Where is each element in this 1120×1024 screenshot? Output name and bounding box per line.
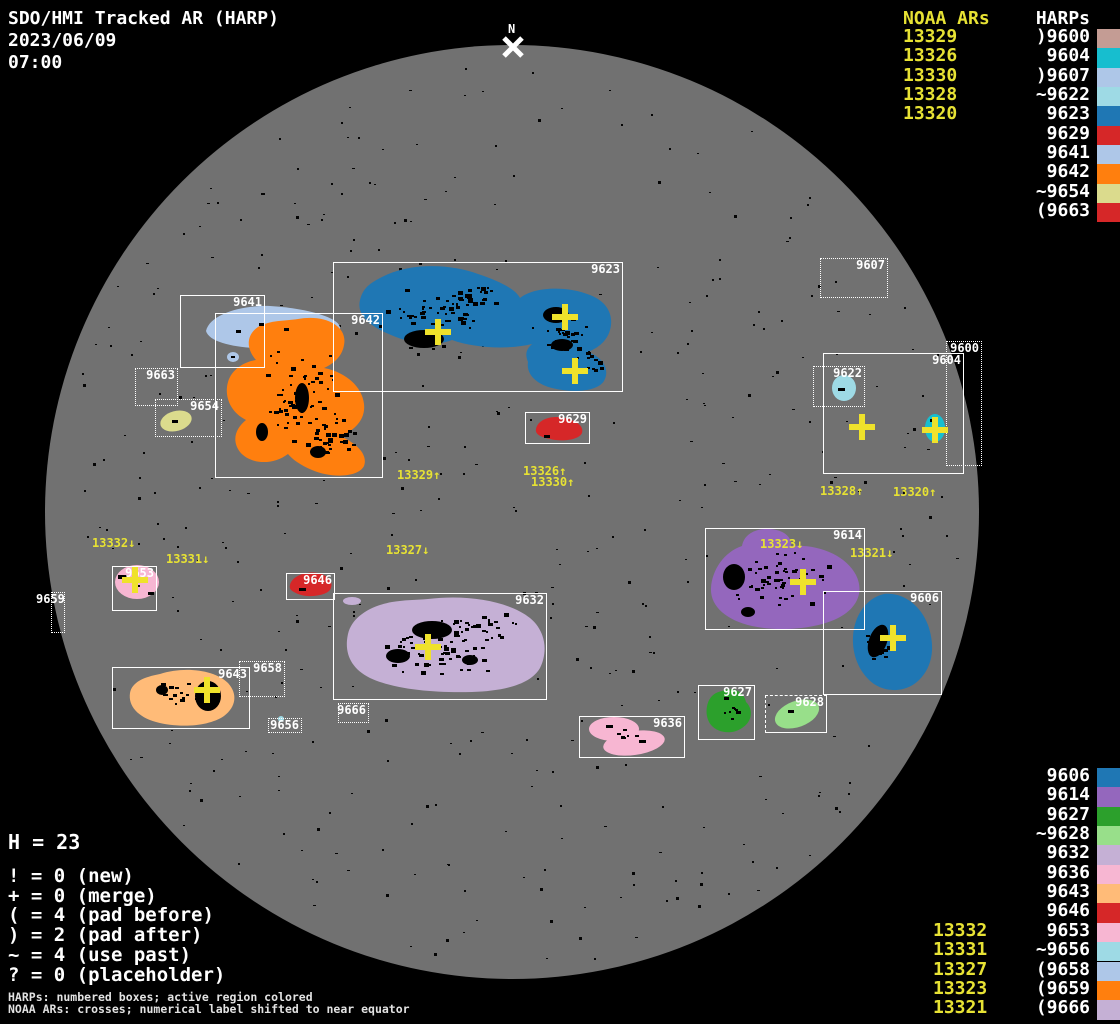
- noaa-cross-icon: [562, 358, 588, 384]
- harp-item-9623: 9623: [1047, 104, 1090, 123]
- harp-color-chip-9629: [1097, 126, 1120, 145]
- footer-line-2: NOAA ARs: crosses; numerical label shift…: [8, 1002, 410, 1016]
- harp-color-chip-9654: [1097, 184, 1120, 203]
- harp-color-chip-9623: [1097, 106, 1120, 125]
- harp-box-label-9629: 9629: [558, 413, 587, 426]
- harp-item-9636: 9636: [1047, 863, 1090, 882]
- harp-box-label-9604: 9604: [932, 354, 961, 367]
- harp-color-chip-9656: [1097, 942, 1120, 961]
- harp-color-chip-9646: [1097, 903, 1120, 922]
- legend-item: ~ = 4 (use past): [8, 945, 191, 965]
- harp-color-chip-9642: [1097, 164, 1120, 183]
- harp-box-label-9658: 9658: [253, 662, 282, 675]
- solar-disk-canvas: [0, 0, 1120, 1024]
- harp-color-chip-9658: [1097, 962, 1120, 981]
- noaa-label: 13320↑: [893, 486, 936, 499]
- noaa-label: 13330↑: [531, 476, 574, 489]
- harp-item-9663: (9663: [1036, 201, 1090, 220]
- harp-color-chip-9614: [1097, 787, 1120, 806]
- harp-item-9627: 9627: [1047, 805, 1090, 824]
- harp-box-label-9628: 9628: [795, 696, 824, 709]
- noaa-cross-icon: [415, 634, 441, 660]
- noaa-label: 13331↓: [166, 553, 209, 566]
- legend-item: ( = 4 (pad before): [8, 905, 214, 925]
- noaa-cross-icon: [425, 319, 451, 345]
- noaa-cross-icon: [849, 414, 875, 440]
- harp-box-label-9607: 9607: [856, 259, 885, 272]
- harp-item-9600: )9600: [1036, 27, 1090, 46]
- noaa-cross-icon: [552, 304, 578, 330]
- noaa-ar-item-13330: 13330: [903, 66, 957, 85]
- noaa-ar-item-13328: 13328: [903, 85, 957, 104]
- harp-item-9666: (9666: [1036, 998, 1090, 1017]
- harp-item-9658: (9658: [1036, 960, 1090, 979]
- harp-box-label-9656: 9656: [270, 719, 299, 732]
- noaa-ar-item-13327: 13327: [933, 960, 987, 979]
- legend-item: + = 0 (merge): [8, 886, 157, 906]
- harp-color-chip-9659: [1097, 981, 1120, 1000]
- noaa-cross-icon: [122, 567, 148, 593]
- harp-item-9632: 9632: [1047, 843, 1090, 862]
- harp-item-9643: 9643: [1047, 882, 1090, 901]
- harp-color-chip-9627: [1097, 807, 1120, 826]
- noaa-ar-item-13321: 13321: [933, 998, 987, 1017]
- time-label: 07:00: [8, 52, 62, 74]
- noaa-label: 13323↓: [760, 538, 803, 551]
- harp-item-9653: 9653: [1047, 921, 1090, 940]
- harp-item-9614: 9614: [1047, 785, 1090, 804]
- noaa-label: 13329↑: [397, 469, 440, 482]
- harp-box-label-9614: 9614: [833, 529, 862, 542]
- harp-color-chip-9636: [1097, 865, 1120, 884]
- noaa-ar-item-13323: 13323: [933, 979, 987, 998]
- harp-item-9642: 9642: [1047, 162, 1090, 181]
- legend-item: ? = 0 (placeholder): [8, 965, 225, 985]
- north-label: N: [508, 22, 515, 36]
- noaa-label: 13328↑: [820, 485, 863, 498]
- harp-box-label-9606: 9606: [910, 592, 939, 605]
- noaa-cross-icon: [790, 569, 816, 595]
- harp-color-chip-9643: [1097, 884, 1120, 903]
- harp-box-label-9636: 9636: [653, 717, 682, 730]
- harp-item-9606: 9606: [1047, 766, 1090, 785]
- noaa-ar-item-13331: 13331: [933, 940, 987, 959]
- legend-item: ! = 0 (new): [8, 866, 134, 886]
- harp-color-chip-9632: [1097, 845, 1120, 864]
- date-label: 2023/06/09: [8, 30, 116, 52]
- harp-color-chip-9600: [1097, 29, 1120, 48]
- harp-item-9629: 9629: [1047, 124, 1090, 143]
- harp-color-chip-9604: [1097, 48, 1120, 67]
- harp-item-9604: 9604: [1047, 46, 1090, 65]
- harp-box-label-9659: 9659: [36, 593, 65, 606]
- noaa-ar-item-13320: 13320: [903, 104, 957, 123]
- harp-color-chip-9628: [1097, 826, 1120, 845]
- harp-item-9659: (9659: [1036, 979, 1090, 998]
- harp-box-label-9666: 9666: [337, 704, 366, 717]
- harp-box-label-9632: 9632: [515, 594, 544, 607]
- harp-item-9656: ~9656: [1036, 940, 1090, 959]
- noaa-label: 13327↓: [386, 544, 429, 557]
- harp-color-chip-9653: [1097, 923, 1120, 942]
- harp-color-chip-9641: [1097, 145, 1120, 164]
- page-title: SDO/HMI Tracked AR (HARP): [8, 8, 279, 30]
- harp-item-9607: )9607: [1036, 66, 1090, 85]
- harp-item-9641: 9641: [1047, 143, 1090, 162]
- harp-color-chip-9606: [1097, 768, 1120, 787]
- noaa-cross-icon: [194, 677, 220, 703]
- harp-color-chip-9663: [1097, 203, 1120, 222]
- legend-item: ) = 2 (pad after): [8, 925, 202, 945]
- harp-full-disk-map: 9641966396549642962396299607960096049622…: [0, 0, 1120, 1024]
- harp-box-label-9646: 9646: [303, 574, 332, 587]
- noaa-ar-item-13326: 13326: [903, 46, 957, 65]
- solar-disk: [45, 45, 979, 979]
- harp-box-label-9623: 9623: [591, 263, 620, 276]
- harp-color-chip-9666: [1097, 1000, 1120, 1019]
- noaa-ar-item-13329: 13329: [903, 27, 957, 46]
- harp-item-9646: 9646: [1047, 901, 1090, 920]
- noaa-ar-item-13332: 13332: [933, 921, 987, 940]
- harp-color-chip-9622: [1097, 87, 1120, 106]
- harp-box-label-9663: 9663: [146, 369, 175, 382]
- harp-item-9622: ~9622: [1036, 85, 1090, 104]
- harp-box-label-9622: 9622: [833, 367, 862, 380]
- noaa-cross-icon: [922, 417, 948, 443]
- noaa-label: 13321↓: [850, 547, 893, 560]
- harp-box-label-9627: 9627: [723, 686, 752, 699]
- noaa-label: 13332↓: [92, 537, 135, 550]
- harp-item-9654: ~9654: [1036, 182, 1090, 201]
- legend-h-count: H = 23: [8, 830, 80, 854]
- noaa-cross-icon: [880, 625, 906, 651]
- harp-color-chip-9607: [1097, 68, 1120, 87]
- harp-item-9628: ~9628: [1036, 824, 1090, 843]
- harp-box-label-9641: 9641: [233, 296, 262, 309]
